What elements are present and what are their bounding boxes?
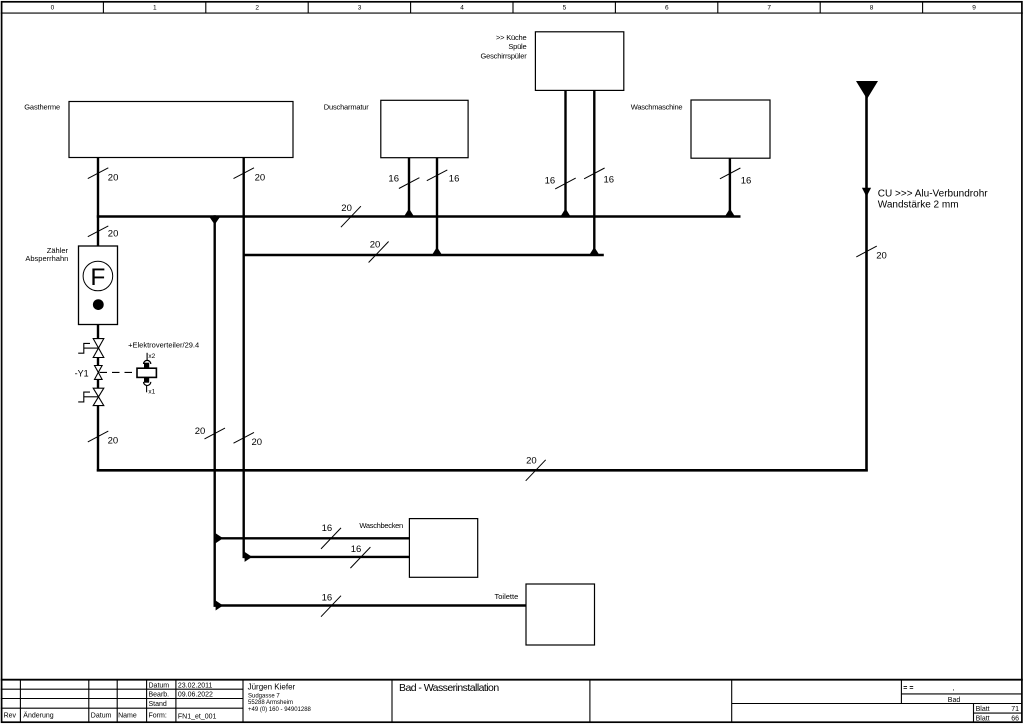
svg-text:>> Küche: >> Küche (496, 33, 527, 42)
svg-text:20: 20 (108, 436, 119, 447)
svg-text:= =: = = (903, 685, 913, 692)
svg-text:Absperrhahn: Absperrhahn (25, 254, 68, 263)
svg-text:Rev: Rev (4, 712, 17, 719)
svg-text:CU >>> Alu-Verbundrohr: CU >>> Alu-Verbundrohr (878, 189, 988, 200)
svg-text:Waschbecken: Waschbecken (359, 521, 403, 530)
svg-text:0: 0 (51, 5, 55, 12)
svg-text:Stand: Stand (149, 701, 167, 708)
svg-text:Blatt: Blatt (976, 716, 990, 723)
svg-text:Waschmaschine: Waschmaschine (631, 102, 683, 111)
svg-text:Bearb.: Bearb. (149, 692, 170, 699)
svg-text:x2: x2 (148, 353, 155, 360)
svg-text:20: 20 (108, 228, 119, 239)
svg-text:Spüle: Spüle (508, 42, 526, 51)
svg-text:+Elektroverteiler/29.4: +Elektroverteiler/29.4 (128, 340, 199, 349)
svg-text:20: 20 (108, 173, 119, 184)
svg-text:5: 5 (563, 5, 567, 12)
svg-text:16: 16 (545, 175, 556, 186)
svg-text:6: 6 (665, 5, 669, 12)
svg-text:4: 4 (460, 5, 464, 12)
svg-text:16: 16 (351, 544, 362, 555)
svg-text:2: 2 (255, 5, 259, 12)
svg-text:71: 71 (1011, 706, 1019, 713)
svg-text:+49 (0) 160 - 94901288: +49 (0) 160 - 94901288 (248, 707, 312, 713)
svg-text:Gastherme: Gastherme (24, 103, 60, 112)
svg-text:1: 1 (153, 5, 157, 12)
svg-text:Jürgen Kiefer: Jürgen Kiefer (248, 683, 296, 692)
svg-text:16: 16 (388, 173, 399, 184)
svg-text:20: 20 (876, 251, 887, 262)
svg-text:FN1_et_001: FN1_et_001 (178, 713, 217, 720)
svg-text:09.06.2022: 09.06.2022 (178, 692, 213, 699)
svg-text:-Y1: -Y1 (75, 369, 89, 379)
svg-text:20: 20 (195, 426, 206, 437)
svg-text:Datum: Datum (91, 712, 112, 719)
svg-text:20: 20 (255, 173, 266, 184)
svg-text:8: 8 (870, 5, 874, 12)
svg-text:,: , (953, 685, 955, 692)
svg-text:55288 Armsheim: 55288 Armsheim (248, 700, 293, 706)
svg-text:3: 3 (358, 5, 362, 12)
svg-text:16: 16 (322, 523, 333, 534)
svg-text:16: 16 (322, 593, 333, 604)
svg-text:Bad: Bad (948, 697, 961, 704)
svg-text:20: 20 (526, 456, 537, 467)
svg-text:Geschirrspüler: Geschirrspüler (481, 51, 528, 60)
svg-text:Bad - Wasserinstallation: Bad - Wasserinstallation (399, 682, 499, 694)
svg-text:x1: x1 (148, 389, 155, 396)
svg-text:66: 66 (1011, 716, 1019, 723)
svg-text:Blatt: Blatt (976, 706, 990, 713)
svg-text:9: 9 (972, 5, 976, 12)
svg-text:20: 20 (341, 203, 352, 214)
svg-text:Form:: Form: (149, 712, 167, 719)
svg-text:Änderung: Änderung (23, 711, 53, 719)
svg-text:16: 16 (604, 175, 615, 186)
svg-text:20: 20 (252, 437, 263, 448)
svg-text:16: 16 (741, 175, 752, 186)
svg-text:Duscharmatur: Duscharmatur (324, 102, 369, 111)
svg-text:Name: Name (118, 712, 137, 719)
svg-text:16: 16 (449, 173, 460, 184)
svg-text:Toilette: Toilette (495, 592, 519, 601)
svg-text:Wandstärke 2 mm: Wandstärke 2 mm (878, 200, 959, 211)
svg-text:Datum: Datum (149, 682, 170, 689)
svg-text:20: 20 (370, 239, 381, 250)
svg-text:F: F (90, 264, 105, 291)
svg-text:7: 7 (767, 5, 771, 12)
svg-text:23.02.2011: 23.02.2011 (178, 682, 213, 689)
svg-text:Sudgasse 7: Sudgasse 7 (248, 693, 280, 699)
